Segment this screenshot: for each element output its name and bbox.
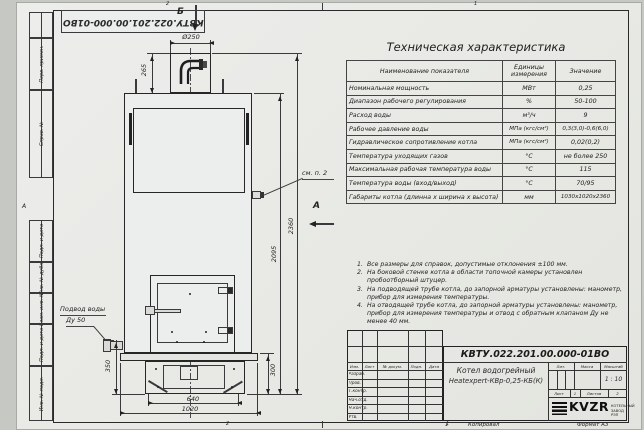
ext-line xyxy=(212,53,302,54)
panel-bracket-left xyxy=(129,113,132,145)
grid-line xyxy=(347,404,443,405)
note-text: На подводящей трубе котла, до запорной а… xyxy=(367,286,624,302)
tb-row-nkontr: Н.контр. xyxy=(349,406,377,411)
spec-cell-name: Габариты котла (длинна х ширина х высота… xyxy=(347,190,503,204)
door-bolt xyxy=(203,341,205,343)
format-label: Формат А3 xyxy=(577,422,608,429)
flue-elbow xyxy=(175,57,209,85)
spec-cell-value: 70/95 xyxy=(556,177,616,191)
base-plate xyxy=(120,353,258,361)
spec-cell-name: Расход воды xyxy=(347,109,503,123)
zone-tick-top xyxy=(322,3,323,10)
tb-row-utv: Утв. xyxy=(349,415,377,420)
spec-cell-name: Температура воды (вход/выход) xyxy=(347,177,503,191)
divider xyxy=(41,13,42,37)
ext-line xyxy=(247,394,302,395)
spec-cell-unit: МПа (кгс/см²) xyxy=(503,122,556,136)
plinth-bolt xyxy=(231,386,233,388)
spec-row: Максимальная рабочая температура воды°С1… xyxy=(347,163,616,177)
dim-arrow xyxy=(278,389,282,397)
dim-arrow xyxy=(266,389,270,397)
top-lug-right xyxy=(222,79,224,93)
stamp-label: Справ. № xyxy=(39,122,45,146)
spec-table-title: Техническая характеристика xyxy=(346,40,606,54)
note-item: 1. Все размеры для справок, допустимые о… xyxy=(352,261,624,269)
stamp-label: Инв. № дубл. xyxy=(39,260,45,294)
spec-cell-unit: мм xyxy=(503,190,556,204)
dim-arrow xyxy=(150,53,154,61)
note-number: 1. xyxy=(352,261,367,269)
spec-table: Наименование показателя Единицы измерени… xyxy=(346,60,616,204)
dim-label-2095: 2095 xyxy=(270,241,278,267)
spec-cell-value: 0,3(3,0)-0,6(6,0) xyxy=(556,122,616,136)
note-item: 2. На боковой стенке котла в области топ… xyxy=(352,269,624,285)
margin-stamp-podp-data-1: Подп. и дата xyxy=(29,220,53,262)
spec-header-name: Наименование показателя xyxy=(347,61,503,82)
grid-line xyxy=(347,387,443,388)
spec-cell-name: Максимальная рабочая температура воды xyxy=(347,163,503,177)
dim-label-350: 350 xyxy=(104,355,112,377)
spec-row: Расход водым³/ч9 xyxy=(347,109,616,123)
spec-row: Температура воды (вход/выход)°С70/95 xyxy=(347,177,616,191)
note-number: 3. xyxy=(352,286,367,302)
plinth-bolt xyxy=(157,386,159,388)
dim-line-640 xyxy=(148,403,239,404)
spec-cell-name: Номинальная мощность xyxy=(347,82,503,96)
note-text: На отводящей трубе котла, до запорной ар… xyxy=(367,302,624,327)
grid-line xyxy=(425,330,426,421)
dim-line-2360 xyxy=(297,53,298,394)
grid-line xyxy=(347,396,443,397)
spec-row: Диапазон рабочего регулирования%50-100 xyxy=(347,95,616,109)
tb-col-data: Дата xyxy=(425,363,443,370)
grid-line xyxy=(548,397,627,398)
tb-doc-number: КВТУ.022.201.00.000-01ВО xyxy=(444,347,626,361)
panel-bracket-right xyxy=(246,113,249,145)
spec-cell-unit: МВт xyxy=(503,82,556,96)
dim-label-2360: 2360 xyxy=(287,213,295,239)
spec-row: Гидравлическое сопротивление котлаМПа (к… xyxy=(347,136,616,150)
spec-cell-value: 9 xyxy=(556,109,616,123)
note-item: 3. На подводящей трубе котла, до запорно… xyxy=(352,286,624,302)
dim-line-350 xyxy=(116,340,117,394)
dim-label-265: 265 xyxy=(140,59,148,81)
grid-line xyxy=(347,379,443,380)
spec-cell-unit: % xyxy=(503,95,556,109)
grid-line xyxy=(347,413,443,414)
tb-sheets-label: Листов xyxy=(580,390,608,396)
tb-col-dokum: № докум. xyxy=(377,363,408,370)
notes-list: 1. Все размеры для справок, допустимые о… xyxy=(352,261,624,327)
dim-arrow xyxy=(114,340,118,348)
tb-sheet-label: Лист xyxy=(548,390,570,396)
water-inlet-label-line2: Ду 50 xyxy=(66,317,94,327)
grid-line xyxy=(347,370,443,371)
tb-mass-label: Масса xyxy=(574,363,600,369)
view-a-label: А xyxy=(313,203,320,210)
grid-line xyxy=(408,330,409,421)
spec-cell-value: не более 250 xyxy=(556,149,616,163)
spec-cell-value: 0,02(0,2) xyxy=(556,136,616,150)
tb-product-name-2: Heatexpert-КВр-0,25-КБ(К) xyxy=(444,376,548,385)
dim-arrow xyxy=(278,93,282,101)
spec-cell-value: 1030х1020х2360 xyxy=(556,190,616,204)
grid-line xyxy=(548,370,627,371)
plinth-bolt xyxy=(233,368,235,370)
plinth-bolt xyxy=(155,368,157,370)
spec-header-row: Наименование показателя Единицы измерени… xyxy=(347,61,616,82)
door-handle-rod xyxy=(154,309,181,313)
spec-cell-unit: МПа (кгс/см²) xyxy=(503,136,556,150)
tb-sheet-value: 1 xyxy=(570,390,580,396)
spec-cell-name: Рабочее давление воды xyxy=(347,122,503,136)
ext-line xyxy=(257,363,258,416)
dim-arrow xyxy=(295,53,299,61)
spec-row: Рабочее давление водыМПа (кгс/см²)0,3(3,… xyxy=(347,122,616,136)
dim-arrow xyxy=(253,411,261,415)
tb-scale-label: Масштаб xyxy=(600,363,627,369)
view-b-arrow-line xyxy=(195,5,197,25)
copy-label: Копировал xyxy=(468,422,499,429)
title-block: Изм. Лист № докум. Подп. Дата Разраб. Пр… xyxy=(347,330,627,421)
dim-arrow xyxy=(148,401,156,405)
water-inlet-label-line1: Подвод воды xyxy=(60,306,106,316)
kvzr-logo-icon xyxy=(552,402,567,415)
tb-scale-value: 1 : 10 xyxy=(600,373,627,385)
dim-label-1020: 1020 xyxy=(165,405,215,413)
spec-header-unit: Единицы измерения xyxy=(503,61,556,82)
tb-col-list: Лист xyxy=(362,363,377,370)
dim-label-d250: Ø250 xyxy=(172,33,210,41)
spec-cell-value: 0,25 xyxy=(556,82,616,96)
tb-row-nachotd: Нач.отд. xyxy=(349,398,377,403)
bottom-tick-1: 1 xyxy=(445,422,448,429)
note-text: На боковой стенке котла в области топочн… xyxy=(367,269,624,285)
spec-cell-unit: °С xyxy=(503,149,556,163)
door-hinge-top-pin xyxy=(228,288,232,293)
tb-row-prov: Пров. xyxy=(349,381,377,386)
tb-col-izm: Изм. xyxy=(347,363,362,370)
door-bolt xyxy=(171,331,173,333)
door-bolt xyxy=(176,341,178,343)
dim-arrow xyxy=(206,41,214,45)
view-b-label: Б xyxy=(177,9,184,16)
ext-line xyxy=(103,340,114,341)
dim-line-1020 xyxy=(120,413,258,414)
kvzr-logo-sub2: ЗАВОД РЭП xyxy=(611,409,627,418)
zone-label-top-2: 2 xyxy=(166,1,169,8)
top-lug-left xyxy=(135,79,137,93)
view-a-arrowhead xyxy=(306,221,316,227)
spec-cell-unit: °С xyxy=(503,177,556,191)
spec-header-value: Значение xyxy=(556,61,616,82)
margin-stamp-podp-data-2: Подп. и дата xyxy=(29,324,53,366)
note-item: 4. На отводящей трубе котла, до запорной… xyxy=(352,302,624,327)
tb-row-razrab: Разраб. xyxy=(349,372,377,377)
kvzr-logo-text: KVZR xyxy=(569,399,613,417)
stamp-label: Подп. и дата xyxy=(39,224,45,258)
tb-product-name-1: Котел водогрейный xyxy=(444,366,548,375)
spec-cell-name: Гидравлическое сопротивление котла xyxy=(347,136,503,150)
dim-line-2095 xyxy=(280,93,281,394)
note-text: Все размеры для справок, допустимые откл… xyxy=(367,261,624,269)
spec-cell-name: Диапазон рабочего регулирования xyxy=(347,95,503,109)
spec-row: Температура уходящих газов°Сне более 250 xyxy=(347,149,616,163)
stamp-label: Инв. № подл. xyxy=(39,376,45,411)
dim-label-300: 300 xyxy=(269,359,277,381)
spec-cell-unit: м³/ч xyxy=(503,109,556,123)
grid-line xyxy=(557,370,558,390)
margin-stamp-sprav-no: Справ. № xyxy=(29,90,53,178)
doc-number-rotated: КВТУ.022.201.00.000-01ВО xyxy=(63,17,204,27)
note-number: 4. xyxy=(352,302,367,327)
ext-line xyxy=(120,363,121,416)
spec-cell-value: 50-100 xyxy=(556,95,616,109)
zone-label-bottom-2: 2 xyxy=(226,421,229,428)
stamp-label: Взам. инв. № xyxy=(39,292,45,326)
margin-stamp-perv-primen: Перв. примен. xyxy=(29,38,53,90)
dim-label-640: 640 xyxy=(168,395,218,403)
zone-label-top-1: 1 xyxy=(474,1,477,8)
tb-lit-label: Лит. xyxy=(548,363,574,369)
margin-stamp-vzam-inv: Взам. инв. № xyxy=(29,293,53,324)
spec-row: Номинальная мощностьМВт0,25 xyxy=(347,82,616,96)
door-bolt xyxy=(205,331,207,333)
callout-see-note2: см. п. 2 xyxy=(302,170,334,180)
spec-row: Габариты котла (длинна х ширина х высота… xyxy=(347,190,616,204)
grid-line xyxy=(377,330,378,421)
spec-cell-unit: °С xyxy=(503,163,556,177)
dim-arrow xyxy=(170,41,178,45)
stamp-label: Подп. и дата xyxy=(39,328,45,362)
spec-cell-value: 115 xyxy=(556,163,616,177)
grid-line xyxy=(347,346,443,347)
door-bolt xyxy=(189,293,191,295)
margin-stamp-inv-podl: Инв. № подл. xyxy=(29,366,53,421)
tb-col-podp: Подп. xyxy=(408,363,425,370)
sampling-fitting xyxy=(252,191,261,199)
door-hinge-bottom-pin xyxy=(228,328,232,333)
margin-stamp-empty xyxy=(29,12,53,38)
dim-arrow xyxy=(150,88,154,96)
drawing-sheet-scan: 2 1 2 1 А Перв. примен. Справ. № Подп. и… xyxy=(0,0,644,430)
stamp-label: Перв. примен. xyxy=(39,45,45,83)
ash-box xyxy=(180,366,198,380)
dim-arrow xyxy=(114,389,118,397)
kvzr-logo-sub1: КОТЕЛЬНЫЙ xyxy=(611,404,627,409)
margin-stamp-inv-dubl: Инв. № дубл. xyxy=(29,262,53,293)
tb-row-tkontr: Т.контр. xyxy=(349,389,377,394)
tb-sheets-value: 2 xyxy=(608,390,627,396)
zone-tick-bottom xyxy=(322,421,323,428)
spec-cell-name: Температура уходящих газов xyxy=(347,149,503,163)
row-marker-left: А xyxy=(22,203,26,210)
upper-panel xyxy=(133,108,245,193)
grid-line xyxy=(565,370,566,390)
note-number: 2. xyxy=(352,269,367,285)
dim-arrow xyxy=(295,389,299,397)
dim-arrow xyxy=(120,411,128,415)
dim-arrow xyxy=(234,401,242,405)
